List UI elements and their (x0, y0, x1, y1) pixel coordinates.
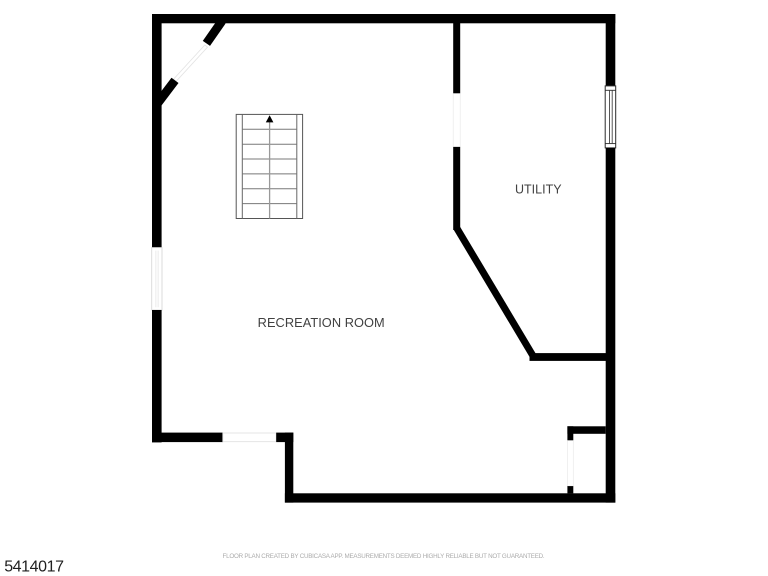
svg-text:RECREATION ROOM: RECREATION ROOM (258, 315, 385, 330)
svg-text:5414017: 5414017 (4, 558, 64, 575)
svg-text:UTILITY: UTILITY (515, 182, 562, 196)
svg-text:FLOOR PLAN CREATED BY CUBICASA: FLOOR PLAN CREATED BY CUBICASA APP. MEAS… (223, 553, 545, 560)
